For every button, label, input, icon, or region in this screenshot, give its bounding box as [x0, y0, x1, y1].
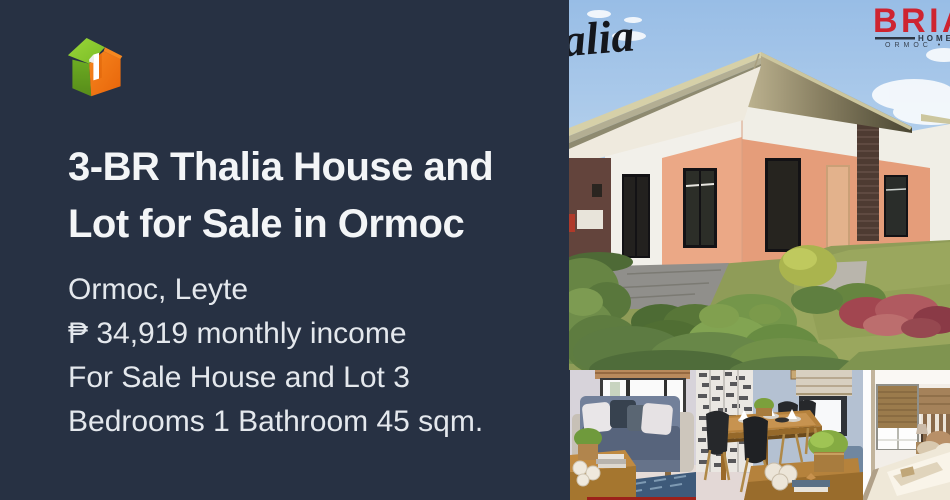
- svg-text:alia: alia: [569, 9, 636, 66]
- svg-text:ORMOC • L: ORMOC • L: [885, 42, 950, 49]
